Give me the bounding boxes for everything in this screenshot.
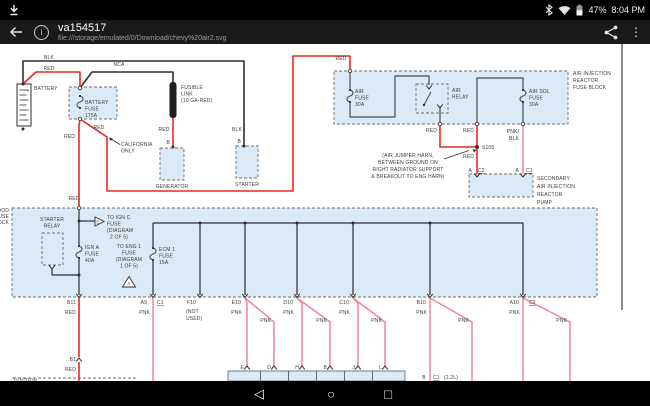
diagram-label: PNK: [283, 310, 294, 316]
diagram-label: AIR: [355, 89, 364, 95]
page-title: va154517: [58, 22, 604, 34]
diagram-label: BLK: [232, 127, 242, 133]
junction-dot: [78, 274, 81, 277]
diagram-label: B10: [417, 300, 426, 306]
ign-a-fuse-symbol: [78, 245, 80, 247]
junction-dot: [22, 128, 25, 131]
diagram-label: STARTER: [235, 182, 259, 188]
terminal-circle: [78, 117, 81, 120]
app-bar: i va154517 file:///storage/emulated/0/Do…: [0, 20, 650, 44]
air-fuse-symbol: [349, 89, 351, 91]
diagram-label: AIR SOL: [529, 89, 550, 95]
terminal-circle: [475, 122, 478, 125]
file-path: file:///storage/emulated/0/Download/chev…: [58, 34, 604, 43]
terminal-circle: [438, 122, 441, 125]
diagram-label: A9: [141, 300, 147, 306]
diagram-label: RED: [65, 367, 76, 373]
diagram-label: FUSIBLE: [181, 85, 203, 91]
diagram-label: PNK/: [507, 129, 520, 135]
diagram-label: PNK: [509, 310, 520, 316]
diagram-label: PNK: [231, 310, 242, 316]
junction-dot: [78, 220, 81, 223]
diagram-label: GENERATOR: [156, 184, 189, 190]
nav-recents-button[interactable]: □: [384, 386, 392, 401]
diagram-label: (NOT: [186, 309, 199, 315]
diagram-label: 2 OF 5): [110, 235, 128, 241]
air-sol-fuse-symbol: [522, 101, 524, 103]
starter-box: [236, 146, 258, 178]
diagram-label: PNK: [556, 318, 567, 324]
diagram-label: LINK: [181, 92, 193, 98]
diagram-label: FUSE: [85, 107, 99, 113]
diagram-label: BLK: [44, 55, 54, 61]
diagram-label: 30A: [355, 102, 365, 108]
diagram-label: 40A: [85, 258, 95, 264]
nav-home-button[interactable]: ○: [327, 386, 335, 401]
diagram-label: RED: [64, 134, 75, 140]
junction-dot: [352, 222, 355, 225]
file-info-icon[interactable]: i: [34, 25, 49, 40]
diagram-label: FUSE BLOCK: [573, 85, 607, 91]
wiring-diagram-canvas[interactable]: BLKREDBATTERY+NCABATTERYFUSE175AFUSIBLEL…: [0, 0, 650, 406]
diagram-label: H: [295, 365, 299, 371]
diagram-label: REACTOR: [537, 192, 563, 198]
junction-dot: [244, 222, 247, 225]
diagram-label: BLK: [509, 136, 519, 142]
diagram-label: FUSE: [355, 96, 369, 102]
diagram-label: IGN A: [85, 245, 100, 251]
diagram-label: C2: [529, 300, 536, 306]
android-screen: BLKREDBATTERY+NCABATTERYFUSE175AFUSIBLEL…: [0, 0, 650, 406]
diagram-label: FUSE: [529, 96, 543, 102]
generator-box: [160, 148, 184, 180]
junction-dot: [172, 146, 175, 149]
diagram-label: (DIAGRAM: [107, 228, 133, 234]
diagram-label: & BREAKOUT TO ENG HARN): [371, 174, 444, 180]
diagram-label: FUSE: [159, 254, 173, 260]
diagram-label: REACTOR: [573, 78, 599, 84]
junction-dot: [22, 83, 25, 86]
terminal-circle: [77, 206, 80, 209]
diagram-label: RED: [93, 125, 104, 131]
diagram-label: PNK: [458, 318, 469, 324]
diagram-label: A: [128, 281, 131, 286]
diagram-label: FUSE: [122, 251, 136, 257]
diagram-label: (AIR JUMPER HARN,: [382, 153, 433, 159]
diagram-label: AIR INJECTION: [573, 71, 611, 77]
diagram-label: C1: [157, 300, 164, 306]
diagram-label: F10: [187, 300, 196, 306]
diagram-label: PNK: [371, 318, 382, 324]
share-icon[interactable]: [604, 25, 618, 40]
battery-percent: 47%: [588, 5, 606, 15]
ecm1-fuse-symbol: [152, 259, 154, 261]
diagram-label: 175A: [85, 113, 98, 119]
title-block: va154517 file:///storage/emulated/0/Down…: [58, 22, 604, 43]
diagram-label: C1: [526, 168, 533, 174]
diagram-label: 15A: [159, 260, 169, 266]
diagram-label: A: [469, 168, 473, 174]
diagram-label: STARTER: [40, 217, 64, 223]
overflow-menu-icon[interactable]: ⋮: [630, 26, 642, 38]
download-done-icon: [8, 4, 20, 17]
diagram-label: L: [379, 365, 382, 371]
diagram-label: D: [267, 365, 271, 371]
diagram-label: FUSE: [107, 222, 121, 228]
diagram-label: RED: [158, 127, 169, 133]
diagram-label: B: [167, 140, 171, 146]
diagram-label: RELAY: [44, 224, 61, 230]
diagram-label: E10: [232, 300, 241, 306]
diagram-label: D: [96, 219, 99, 224]
battery-icon: [576, 4, 583, 16]
diagram-label: PNK: [260, 318, 271, 324]
diagram-label: (DIAGRAM: [116, 257, 142, 263]
diagram-label: B11: [67, 300, 76, 306]
diagram-label: FUSE: [85, 252, 99, 258]
diagram-label: J: [352, 365, 355, 371]
diagram-label: NCA: [113, 62, 125, 68]
nav-back-button[interactable]: ◁: [254, 386, 264, 402]
diagram-label: RED: [426, 128, 437, 134]
terminal-circle: [521, 122, 524, 125]
junction-dot: [429, 222, 432, 225]
navigation-bar: ◁ ○ □: [0, 381, 650, 406]
ign-a-fuse-symbol: [78, 257, 80, 259]
diagram-label: 30A: [529, 102, 539, 108]
diagram-label: S105: [482, 145, 494, 151]
fusible-link-symbol: [170, 82, 177, 118]
diagram-label: BATTERY: [34, 86, 58, 92]
diagram-label: RELAY: [452, 95, 469, 101]
diagram-label: TO ENG 1: [117, 244, 142, 250]
diagram-label: ONLY: [121, 149, 135, 155]
diagram-label: BLOCK: [0, 220, 10, 226]
diagram-label: 1 OF 5): [120, 264, 138, 270]
secondary-air-pump-box: [469, 174, 533, 197]
diagram-label: A10: [510, 300, 519, 306]
junction-dot: [243, 145, 246, 148]
air-fuse-symbol: [349, 101, 351, 103]
diagram-label: RED: [335, 56, 346, 62]
diagram-label: SECONDARY: [537, 176, 570, 182]
diagram-label: B1: [70, 357, 76, 363]
diagram-label: B: [238, 139, 242, 145]
diagram-label: RED: [463, 128, 474, 134]
junction-dot: [199, 222, 202, 225]
battery-fuse-symbol: [79, 95, 81, 97]
bluetooth-icon: [545, 4, 553, 16]
diagram-label: C10: [339, 300, 349, 306]
diagram-label: E: [241, 365, 245, 371]
junction-dot: [296, 222, 299, 225]
air-sol-fuse-symbol: [522, 89, 524, 91]
battery-fuse-symbol: [79, 107, 81, 109]
clock: 8:04 PM: [611, 5, 645, 15]
diagram-label: BETWEEN GROUND ON: [378, 160, 438, 166]
diagram-label: PNK: [416, 310, 427, 316]
diagram-label: TO IGN C: [107, 215, 131, 221]
diagram-label: PNK: [316, 318, 327, 324]
diagram-label: RED: [68, 196, 79, 202]
diagram-label: C2: [478, 168, 485, 174]
diagram-label: RED: [65, 310, 76, 316]
diagram-label: PUMP: [537, 200, 553, 206]
diagram-label: RED: [463, 154, 474, 160]
diagram-label: AIR: [452, 88, 461, 94]
diagram-label: AIR INJECTION: [537, 184, 575, 190]
diagram-label: PNK: [139, 310, 150, 316]
diagram-label: BATTERY: [85, 100, 109, 106]
diagram-label: A: [516, 168, 520, 174]
diagram-label: USED): [186, 316, 202, 322]
wifi-icon: [558, 5, 571, 16]
ecm1-fuse-symbol: [152, 247, 154, 249]
diagram-label: RED: [43, 66, 54, 72]
back-arrow-icon[interactable]: [8, 24, 24, 40]
terminal-circle: [348, 69, 351, 72]
diagram-label: PNK: [339, 310, 350, 316]
diagram-label: RIGHT RADIATOR SUPPORT: [373, 167, 444, 173]
diagram-label: B: [324, 365, 328, 371]
diagram-label: D10: [283, 300, 293, 306]
diagram-label: CALIFORNIA: [121, 142, 153, 148]
diagram-label: (10 GA-RED): [181, 98, 213, 104]
status-bar: 47% 8:04 PM: [0, 0, 650, 20]
junction-dot: [423, 104, 425, 106]
junction-dot: [475, 145, 479, 149]
diagram-label: ECM 1: [159, 247, 175, 253]
terminal-circle: [78, 86, 81, 89]
